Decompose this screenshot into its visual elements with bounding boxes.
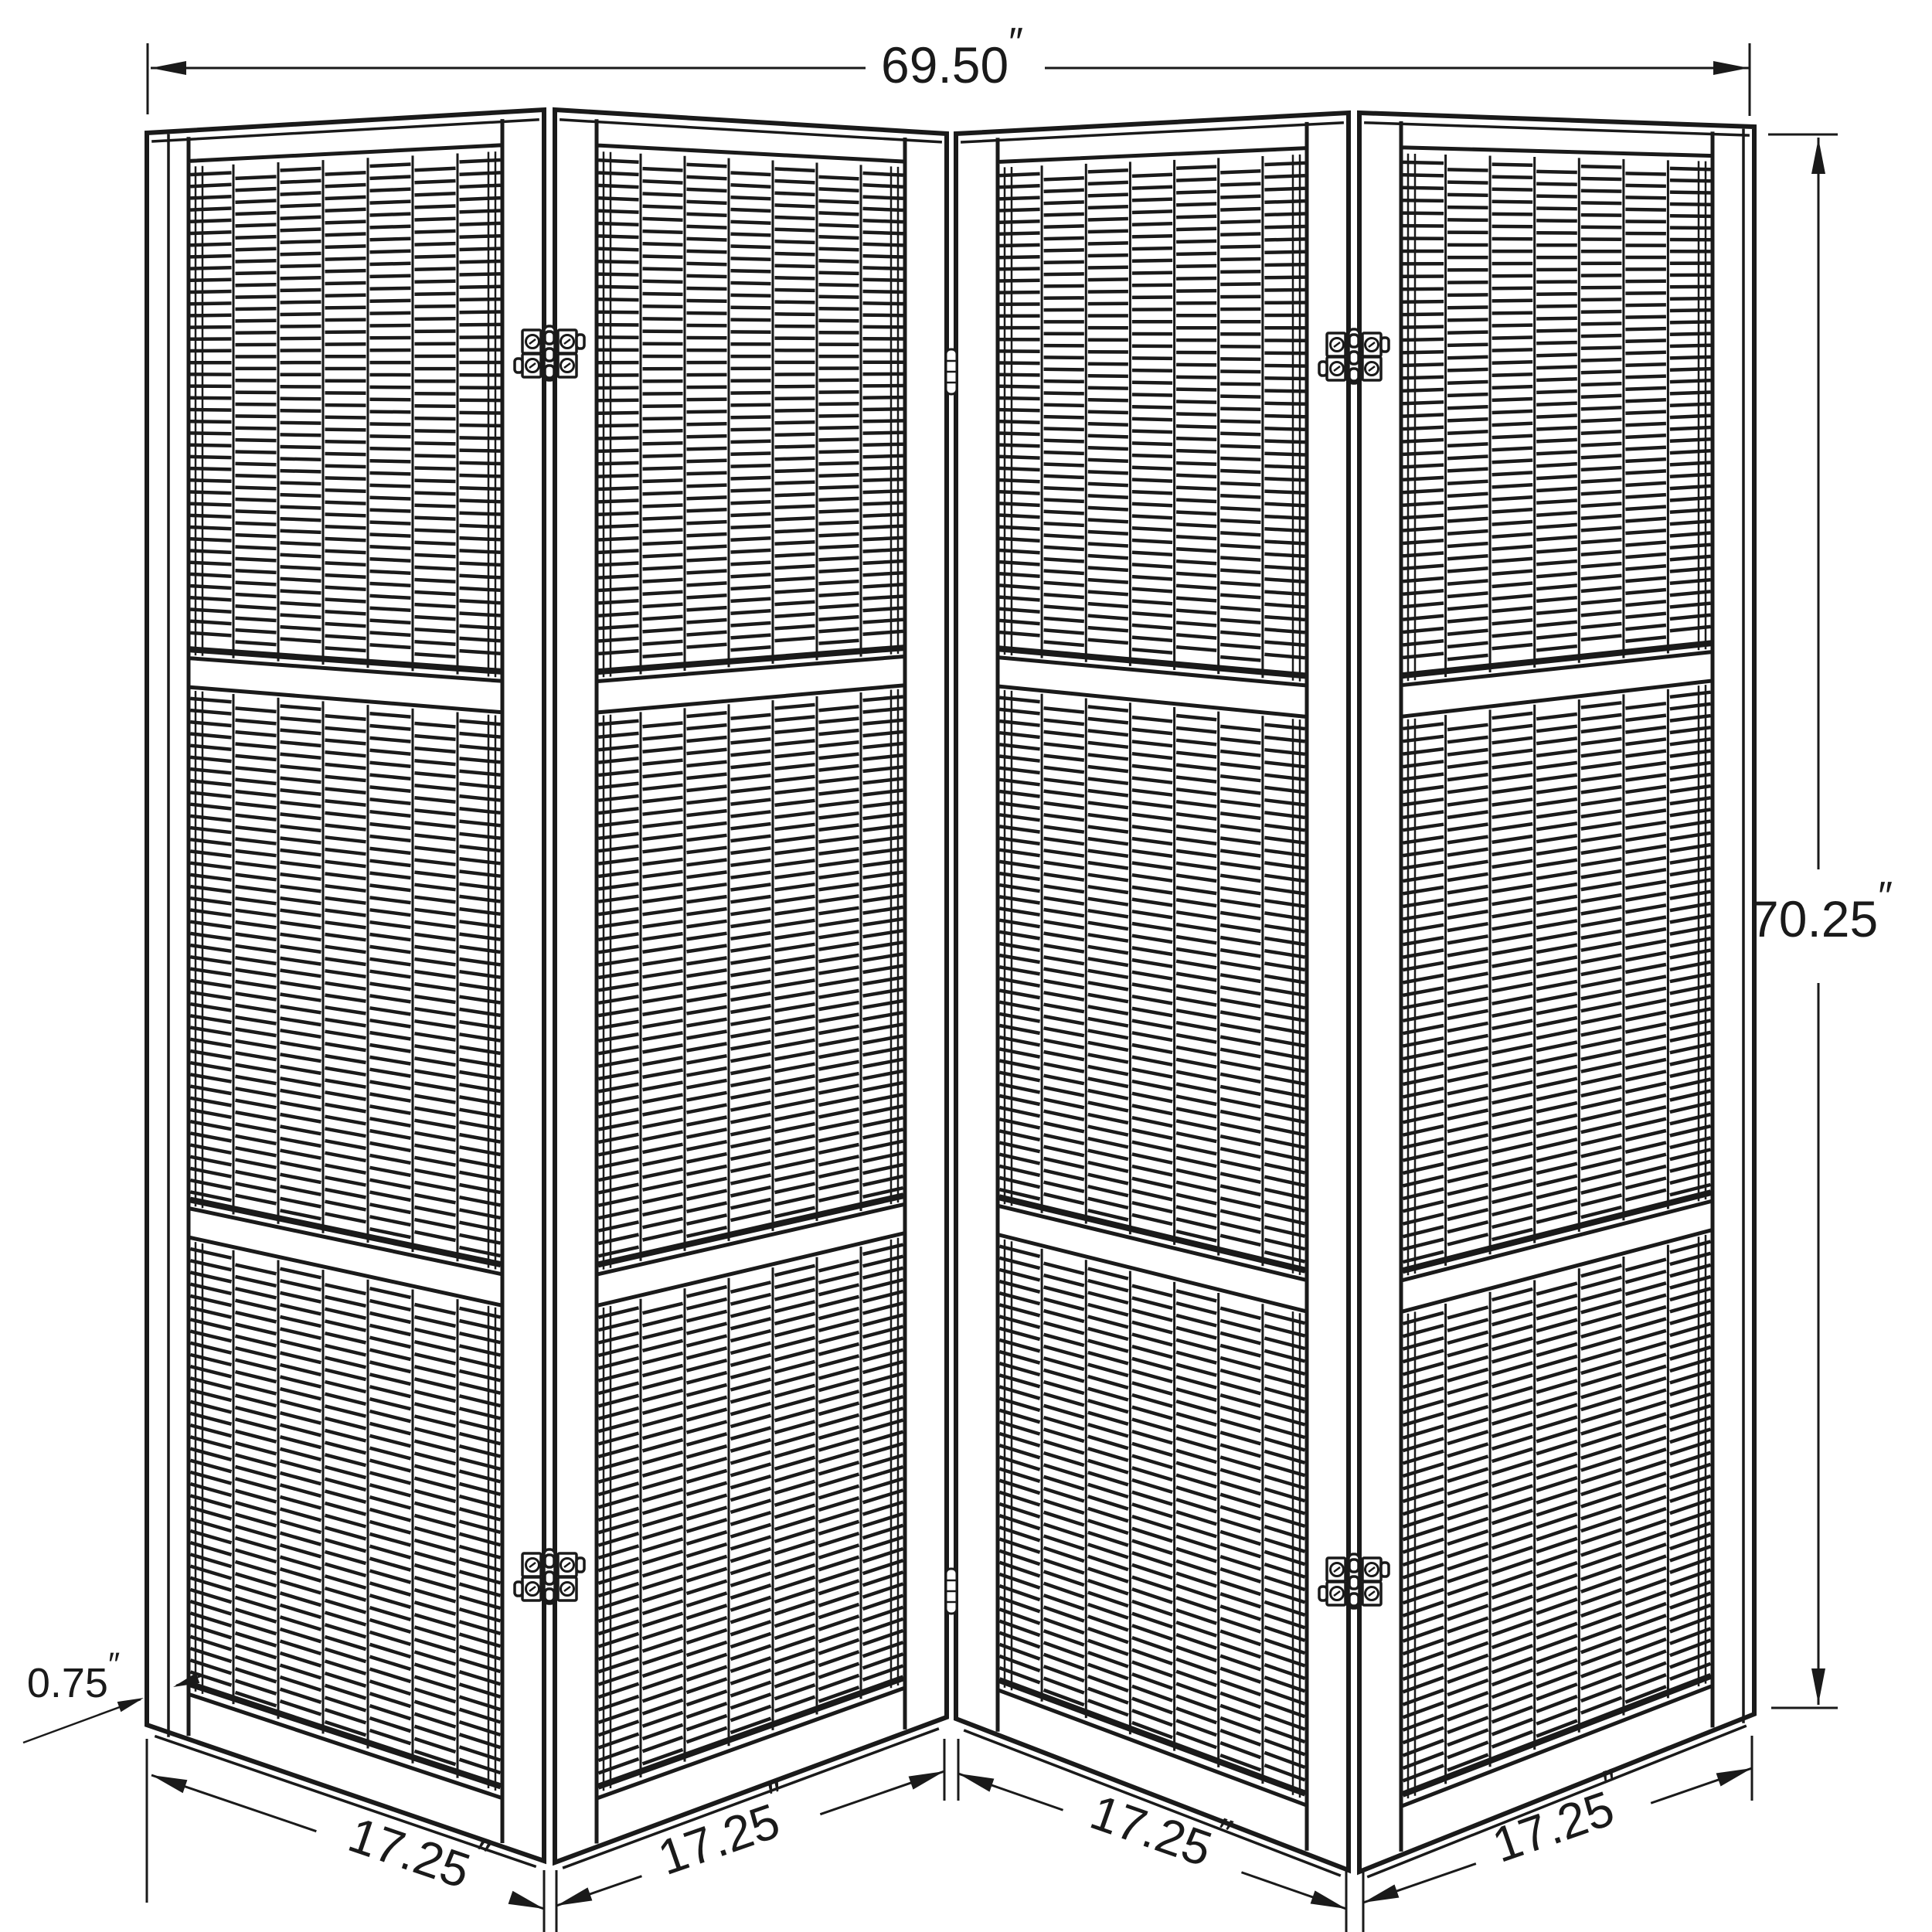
top-hinge-panels-1-2	[515, 326, 584, 380]
panel-2	[555, 110, 947, 1868]
hinge-plate	[1319, 1587, 1327, 1600]
hinge-plate	[577, 335, 584, 349]
hinge-plate	[1319, 362, 1327, 376]
panel-3	[956, 113, 1349, 1876]
hinge-plate	[1349, 352, 1359, 364]
hinge-plate	[545, 366, 554, 378]
top-hinge-panels-3-4	[1319, 329, 1389, 383]
hinge-plate	[1349, 1594, 1359, 1606]
hinge-plate	[545, 1555, 554, 1567]
room-divider-technical-drawing: 69.50″70.25″0.75″17.25″17.25″17.25″17.25…	[0, 0, 1932, 1932]
panel-4	[1359, 113, 1754, 1877]
hinge-plate	[1381, 338, 1389, 352]
hinge-plate	[545, 1572, 554, 1584]
hinge-plate	[1349, 369, 1359, 381]
hinge-plate	[545, 349, 554, 361]
hinge-plate	[1349, 1560, 1359, 1572]
top-barrel-panels-2-3	[946, 349, 957, 394]
hinge-plate	[1381, 1563, 1389, 1577]
bottom-hinge-panels-1-2	[515, 1549, 584, 1604]
hinge-plate	[1349, 1577, 1359, 1589]
hinge-plate	[515, 359, 522, 372]
hinge-plate	[577, 1558, 584, 1572]
hinge-plate	[545, 332, 554, 344]
bottom-hinge-panels-3-4	[1319, 1554, 1389, 1608]
panel-1	[147, 110, 544, 1867]
hinge-plate	[515, 1582, 522, 1596]
bottom-barrel-panels-2-3	[946, 1569, 957, 1614]
hinge-plate	[1349, 335, 1359, 347]
technical-drawing-figure: 69.50″70.25″0.75″17.25″17.25″17.25″17.25…	[0, 0, 1932, 1932]
hinge-plate	[545, 1589, 554, 1601]
